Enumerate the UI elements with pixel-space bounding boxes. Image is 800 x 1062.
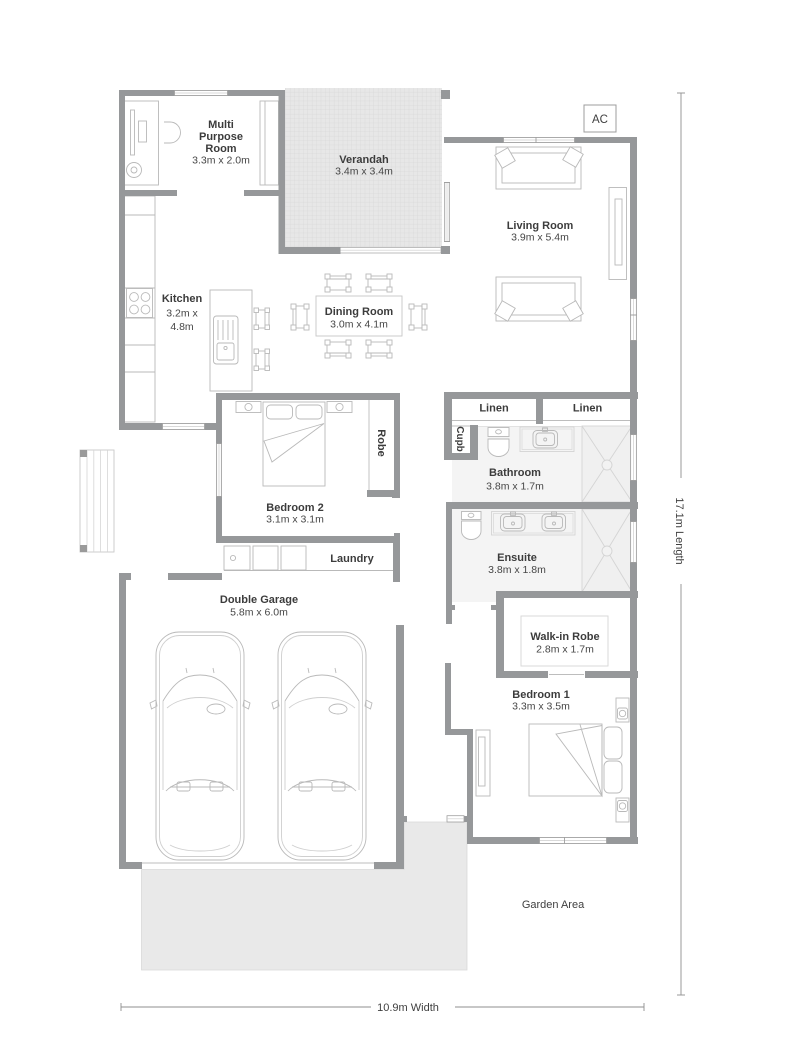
svg-text:Bathroom: Bathroom xyxy=(489,467,541,479)
svg-text:Dining Room: Dining Room xyxy=(325,306,394,318)
svg-text:Verandah: Verandah xyxy=(339,154,389,166)
svg-text:AC: AC xyxy=(592,114,608,126)
svg-text:Ensuite: Ensuite xyxy=(497,552,537,564)
svg-text:5.8m x 6.0m: 5.8m x 6.0m xyxy=(230,607,288,619)
svg-text:3.3m x 2.0m: 3.3m x 2.0m xyxy=(192,155,250,167)
svg-text:Walk-in Robe: Walk-in Robe xyxy=(530,631,599,643)
svg-text:Bedroom 2: Bedroom 2 xyxy=(266,502,323,514)
svg-text:3.1m x 3.1m: 3.1m x 3.1m xyxy=(266,514,324,526)
svg-text:Linen: Linen xyxy=(479,403,509,415)
svg-text:10.9m Width: 10.9m Width xyxy=(377,1002,439,1014)
svg-text:3.2m x: 3.2m x xyxy=(166,308,198,320)
svg-text:Cupb: Cupb xyxy=(454,426,465,452)
svg-text:3.8m x 1.7m: 3.8m x 1.7m xyxy=(486,481,544,493)
svg-text:3.0m x 4.1m: 3.0m x 4.1m xyxy=(330,319,388,331)
svg-text:Bedroom 1: Bedroom 1 xyxy=(512,689,569,701)
svg-text:3.4m x 3.4m: 3.4m x 3.4m xyxy=(335,166,393,178)
svg-text:Multi: Multi xyxy=(208,119,234,131)
svg-text:3.9m x 5.4m: 3.9m x 5.4m xyxy=(511,232,569,244)
svg-text:Purpose: Purpose xyxy=(199,131,243,143)
svg-text:Double Garage: Double Garage xyxy=(220,594,298,606)
svg-text:4.8m: 4.8m xyxy=(170,321,194,333)
svg-text:Robe: Robe xyxy=(375,429,387,457)
svg-text:2.8m x 1.7m: 2.8m x 1.7m xyxy=(536,644,594,656)
svg-text:17.1m Length: 17.1m Length xyxy=(673,497,685,564)
svg-text:3.3m x 3.5m: 3.3m x 3.5m xyxy=(512,701,570,713)
svg-text:Linen: Linen xyxy=(573,403,603,415)
svg-text:Room: Room xyxy=(205,143,236,155)
svg-text:Living Room: Living Room xyxy=(507,220,574,232)
svg-text:Garden Area: Garden Area xyxy=(522,899,585,911)
svg-text:Kitchen: Kitchen xyxy=(162,293,203,305)
svg-text:Laundry: Laundry xyxy=(330,553,374,565)
svg-text:3.8m x 1.8m: 3.8m x 1.8m xyxy=(488,564,546,576)
